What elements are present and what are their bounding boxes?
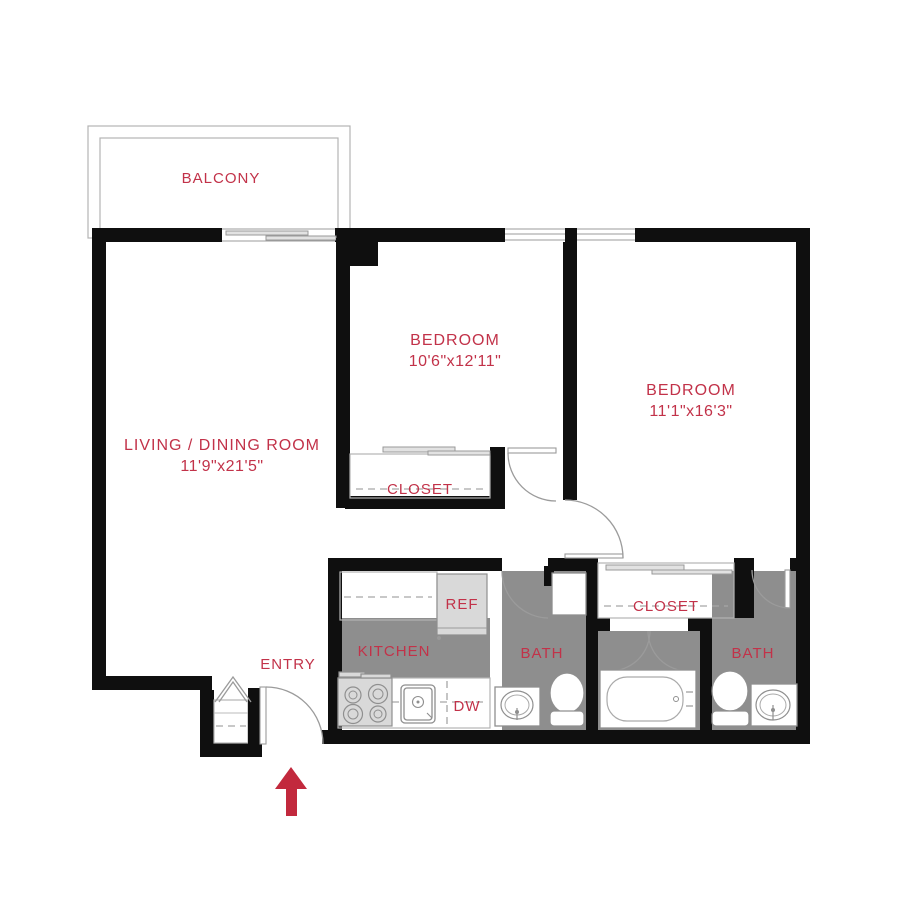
living-dining-dimensions: 11'9"x21'5" [180,458,263,475]
bedroom1-window [505,228,565,242]
entry-arrow-icon [275,767,307,816]
closet2-label: CLOSET [633,598,699,615]
bath2-label: BATH [732,645,775,662]
bifold-door-icon [215,677,251,702]
dishwasher-label: DW [454,698,481,715]
bedroom2-label: BEDROOM [646,382,736,399]
balcony: BALCONY [88,126,350,238]
entry-closet [214,677,262,752]
upper-counter [340,572,437,620]
balcony-sliding-door [222,228,336,242]
floor-plan: BALCONY [0,0,900,900]
stove-icon [338,672,392,726]
bath2-door-leaf [785,570,790,608]
bath1-toilet-icon [550,673,584,726]
bath2-sink-icon [751,684,797,726]
bedroom2-door [565,500,623,558]
bath1-label: BATH [521,645,564,662]
living-dining-label: LIVING / DINING ROOM [124,437,320,454]
entry-door [260,687,323,744]
bedroom2-window [577,228,635,242]
bedroom1-closet: CLOSET [350,447,490,498]
bath2-toilet-icon [712,671,749,726]
bathtub-icon [600,670,696,728]
kitchen-sink-icon [401,685,435,723]
refrigerator-label: REF [446,596,479,613]
bedroom2-dimensions: 11'1"x16'3" [649,403,732,420]
closet1-label: CLOSET [387,481,453,498]
bedroom1-label: BEDROOM [410,332,500,349]
floor-plan-drawing: BALCONY [0,0,900,900]
linen-closet [552,573,586,615]
bedroom1-dimensions: 10'6"x12'11" [409,353,502,370]
bath1-sink-icon [495,687,540,726]
bedroom1-door [508,448,556,501]
entry-label: ENTRY [260,656,316,673]
balcony-label: BALCONY [182,170,261,187]
kitchen-label: KITCHEN [358,643,431,660]
